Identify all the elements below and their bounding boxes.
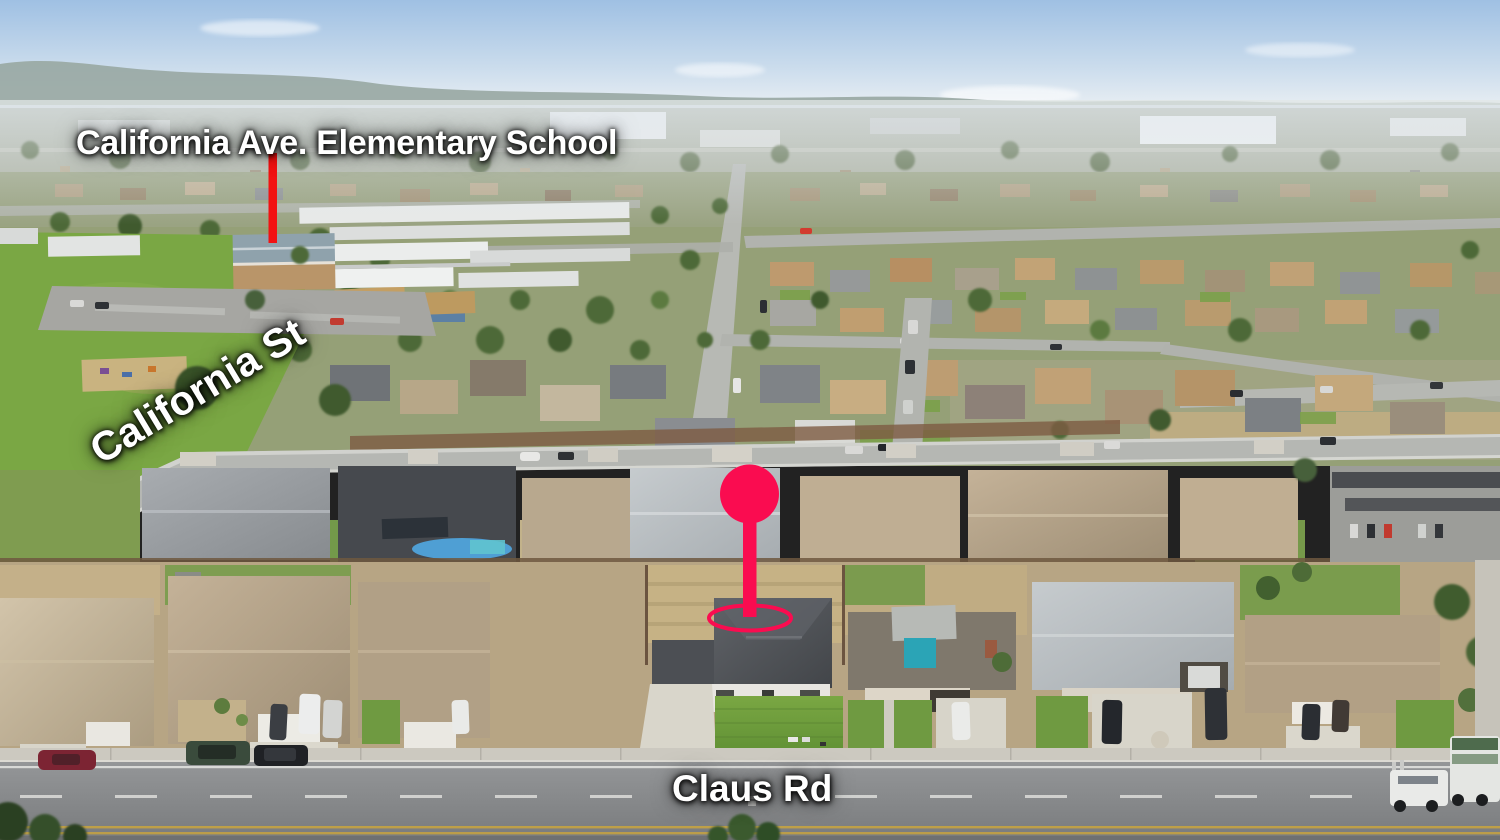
aerial-photo: California Ave. Elementary School Califo… — [0, 0, 1500, 840]
pin-head — [720, 465, 779, 524]
subject-property — [640, 565, 845, 748]
teal-tarp — [904, 638, 936, 668]
school-building — [233, 233, 336, 291]
apartment-carports — [1330, 466, 1500, 566]
subject-driveway — [640, 684, 716, 748]
school-pointer-line — [269, 153, 278, 243]
school-parking-lot — [38, 286, 436, 336]
atmospheric-haze — [0, 105, 1500, 225]
claus-rd-label: Claus Rd — [672, 768, 832, 810]
school-label: California Ave. Elementary School — [76, 124, 617, 163]
